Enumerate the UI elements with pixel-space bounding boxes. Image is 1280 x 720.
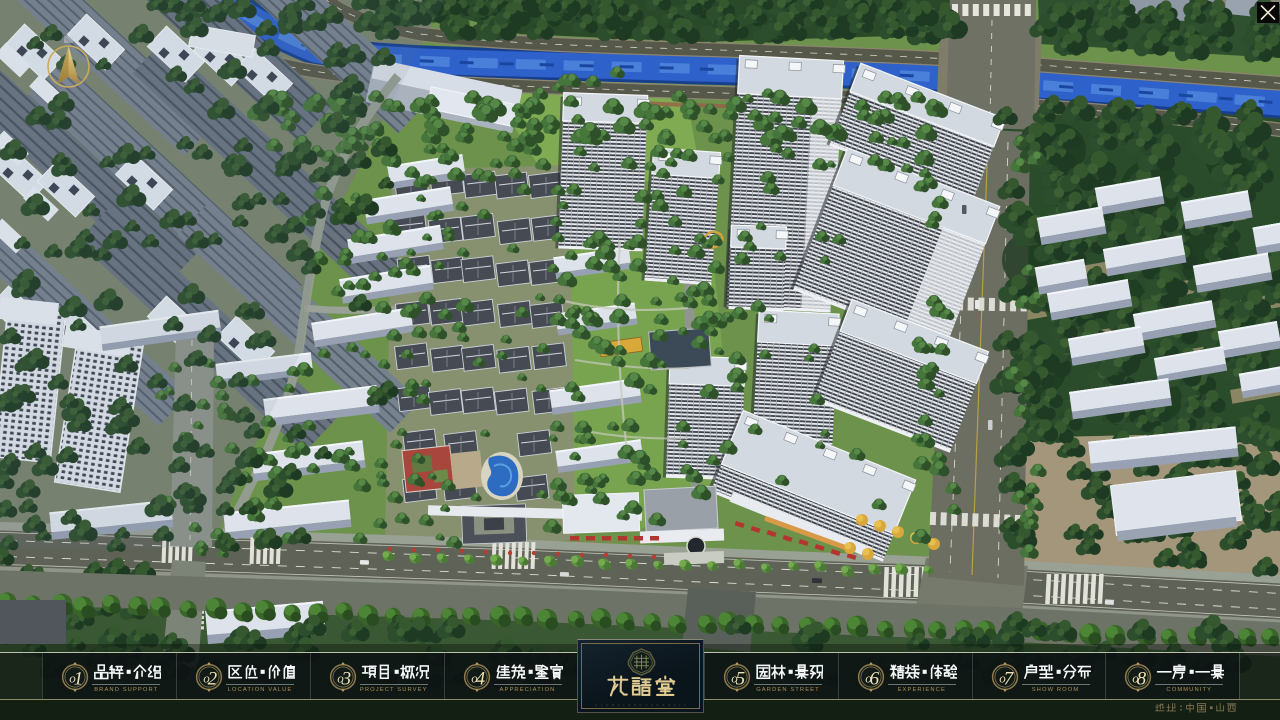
svg-text:7: 7 <box>1003 669 1014 690</box>
svg-text:8: 8 <box>1137 669 1147 690</box>
svg-text:6: 6 <box>869 669 879 690</box>
svg-text:2: 2 <box>208 669 218 690</box>
svg-text:3: 3 <box>340 669 351 690</box>
svg-text:1: 1 <box>74 669 84 690</box>
svg-text:F L O R A L A N G U A G E H: F L O R A L A N G U A G E H A L L <box>595 703 687 707</box>
svg-text:4: 4 <box>475 669 485 690</box>
svg-text:5: 5 <box>736 669 746 690</box>
